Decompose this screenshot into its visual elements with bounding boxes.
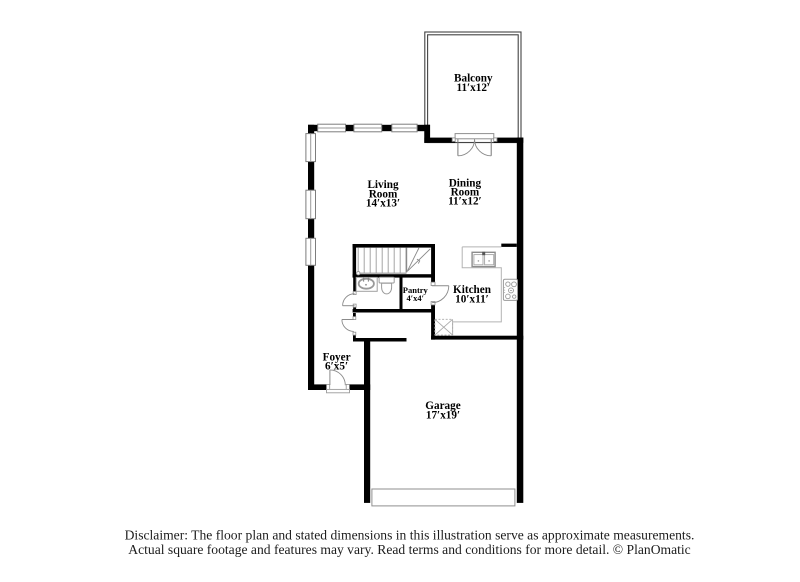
svg-text:4′x4′: 4′x4′ bbox=[407, 293, 425, 303]
svg-text:11′x12′: 11′x12′ bbox=[456, 82, 490, 94]
svg-text:6′x5′: 6′x5′ bbox=[325, 360, 348, 372]
svg-text:17′x19′: 17′x19′ bbox=[426, 409, 460, 421]
svg-text:14′x13′: 14′x13′ bbox=[366, 197, 400, 209]
svg-text:11′x12′: 11′x12′ bbox=[448, 196, 482, 208]
svg-text:Disclaimer: The floor plan and: Disclaimer: The floor plan and stated di… bbox=[125, 528, 695, 543]
svg-text:10′x11′: 10′x11′ bbox=[455, 293, 489, 305]
svg-text:Actual square footage and feat: Actual square footage and features may v… bbox=[128, 542, 690, 557]
